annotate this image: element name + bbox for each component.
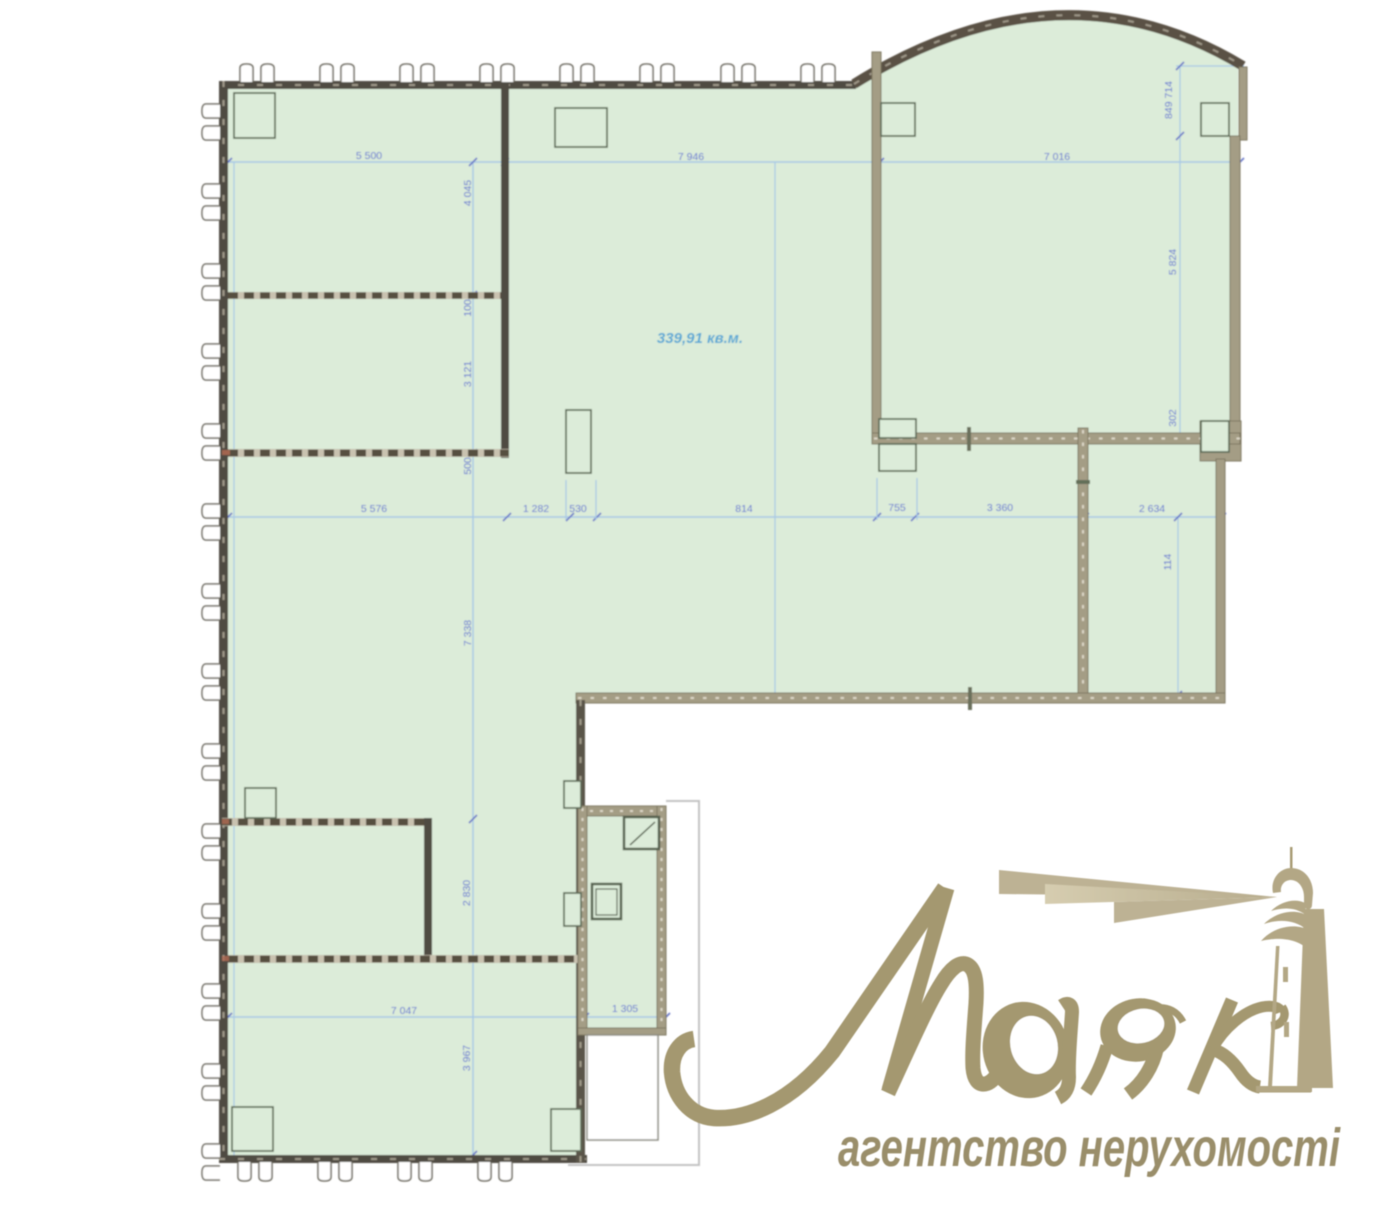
svg-text:1 282: 1 282 xyxy=(523,503,549,515)
svg-text:100: 100 xyxy=(462,299,474,317)
svg-text:4 045: 4 045 xyxy=(462,180,474,206)
svg-text:7 047: 7 047 xyxy=(391,1005,417,1017)
svg-text:7 016: 7 016 xyxy=(1044,151,1070,163)
svg-text:5 500: 5 500 xyxy=(356,150,382,162)
svg-text:3 967: 3 967 xyxy=(461,1045,473,1071)
svg-text:3 360: 3 360 xyxy=(987,502,1013,514)
svg-text:339,91 кв.м.: 339,91 кв.м. xyxy=(657,330,743,347)
svg-text:5 824: 5 824 xyxy=(1167,249,1179,275)
svg-text:3 121: 3 121 xyxy=(462,361,474,387)
svg-text:849 714: 849 714 xyxy=(1163,81,1175,119)
svg-text:814: 814 xyxy=(735,503,753,515)
svg-text:7 338: 7 338 xyxy=(462,620,474,646)
svg-text:агентство нерухомості: агентство нерухомості xyxy=(838,1118,1341,1178)
svg-text:5 576: 5 576 xyxy=(361,503,387,515)
svg-text:755: 755 xyxy=(888,502,906,514)
svg-text:530: 530 xyxy=(569,503,587,515)
svg-text:114: 114 xyxy=(1162,553,1174,570)
svg-text:7 946: 7 946 xyxy=(678,151,704,163)
svg-text:1 305: 1 305 xyxy=(612,1003,638,1015)
svg-text:2 830: 2 830 xyxy=(461,880,473,906)
svg-text:302: 302 xyxy=(1167,409,1179,427)
svg-text:2 634: 2 634 xyxy=(1139,503,1165,515)
svg-text:500: 500 xyxy=(462,457,474,475)
